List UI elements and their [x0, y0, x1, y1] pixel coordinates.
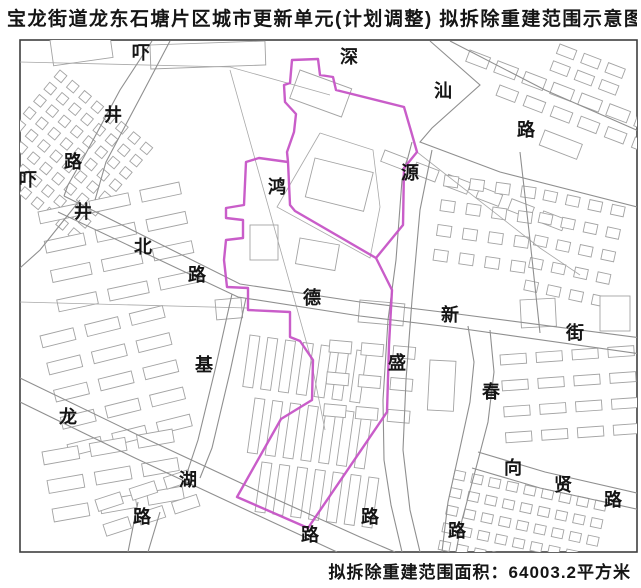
building — [488, 232, 503, 245]
building — [601, 249, 616, 261]
building — [541, 428, 568, 440]
building — [517, 211, 532, 224]
building — [31, 197, 44, 210]
building — [50, 32, 113, 66]
building — [143, 360, 179, 380]
road-label-char: 基 — [194, 354, 214, 375]
parcel-line — [20, 302, 248, 308]
building — [606, 227, 621, 239]
building — [495, 182, 510, 195]
building — [538, 377, 565, 389]
building — [488, 477, 501, 488]
road-label-char: 路 — [64, 151, 83, 172]
building — [586, 535, 599, 546]
building — [523, 95, 546, 112]
building — [466, 203, 481, 216]
building — [85, 317, 121, 337]
building — [23, 107, 36, 120]
building — [533, 235, 548, 247]
building — [506, 481, 519, 492]
building — [551, 528, 564, 539]
building — [103, 517, 131, 536]
building — [358, 375, 381, 389]
building — [47, 474, 85, 493]
building — [524, 280, 539, 292]
building — [504, 405, 531, 417]
building — [462, 228, 477, 241]
building — [42, 446, 80, 465]
building — [46, 105, 59, 118]
building — [15, 142, 28, 155]
building — [278, 340, 295, 393]
ji-road-east — [200, 298, 246, 478]
building — [27, 152, 40, 165]
building — [534, 524, 547, 535]
building — [550, 106, 573, 123]
building — [142, 458, 180, 477]
building — [79, 91, 92, 104]
building — [108, 281, 150, 301]
building — [98, 371, 134, 391]
road-label-char: 吓 — [132, 43, 150, 63]
building — [539, 130, 582, 159]
building — [323, 404, 346, 418]
building — [50, 262, 92, 282]
building — [546, 285, 561, 297]
road-label-char: 吓 — [19, 170, 37, 190]
building — [290, 70, 352, 117]
building — [146, 211, 188, 231]
building — [590, 518, 603, 529]
road-label-char: 源 — [401, 162, 419, 183]
road-label-char: 深 — [340, 46, 358, 67]
road-label-char: 春 — [482, 381, 501, 402]
building — [510, 260, 525, 273]
building — [522, 72, 547, 91]
building — [70, 125, 83, 138]
building — [498, 516, 511, 527]
building — [459, 253, 474, 266]
building — [301, 406, 319, 462]
road-label-char: 路 — [133, 506, 152, 527]
building — [610, 372, 637, 384]
building — [463, 509, 476, 520]
building — [85, 158, 98, 171]
building — [66, 80, 79, 93]
building — [261, 338, 278, 391]
building — [95, 146, 108, 159]
building — [0, 144, 5, 157]
building — [296, 343, 313, 396]
building — [7, 176, 20, 189]
building — [512, 538, 525, 549]
building — [613, 423, 640, 435]
building — [295, 238, 339, 271]
building — [438, 540, 451, 551]
building — [611, 398, 638, 410]
road-label-char: 德 — [303, 287, 321, 308]
building — [109, 179, 122, 192]
building — [81, 113, 94, 126]
building — [583, 222, 598, 234]
building — [574, 70, 594, 86]
building — [36, 117, 49, 130]
building — [336, 411, 354, 467]
road-label-char: 贤 — [554, 475, 572, 495]
building — [548, 545, 561, 556]
building — [358, 300, 405, 326]
building — [495, 534, 508, 545]
building — [48, 127, 61, 140]
building — [150, 387, 186, 407]
road-label-char: 向 — [504, 457, 522, 478]
road-label-char: 路 — [604, 489, 623, 510]
road-label-char: 汕 — [434, 81, 452, 101]
building — [140, 182, 182, 202]
building — [387, 409, 410, 423]
building — [273, 465, 290, 516]
building — [578, 245, 593, 257]
building — [577, 116, 600, 133]
building — [130, 154, 143, 167]
building — [481, 513, 494, 524]
building — [505, 431, 532, 443]
building — [569, 290, 584, 302]
building — [575, 400, 602, 412]
building — [105, 134, 118, 147]
building — [250, 225, 278, 260]
building — [136, 333, 172, 353]
building — [427, 360, 456, 411]
building — [485, 495, 498, 506]
building — [355, 407, 378, 421]
building — [610, 204, 625, 216]
building — [540, 403, 567, 415]
building — [354, 413, 372, 469]
building-cluster — [524, 190, 625, 307]
building — [550, 61, 570, 77]
building — [93, 123, 106, 136]
building — [433, 249, 448, 262]
building-cluster — [500, 346, 640, 443]
building — [469, 179, 484, 192]
building — [536, 351, 563, 363]
building — [496, 85, 519, 102]
building — [25, 129, 38, 142]
road-label-char: 街 — [565, 322, 584, 343]
building — [305, 158, 373, 211]
building — [572, 348, 599, 360]
building — [443, 175, 458, 188]
building — [50, 150, 63, 163]
demolition-scope-map: 宝龙街道龙东石塘片区城市更新单元(计划调整) 拟拆除重建范围示意图 深汕路吓井路… — [0, 0, 641, 588]
map-canvas: 深汕路吓井路吓井北路鸿源德新街盛基春龙湖向贤路路路路路 — [0, 0, 641, 588]
building — [502, 499, 515, 510]
building — [47, 355, 83, 375]
building — [52, 503, 90, 522]
building — [3, 131, 16, 144]
building — [599, 79, 619, 95]
building — [491, 207, 506, 220]
building — [5, 154, 18, 167]
road-label-char: 井 — [104, 104, 122, 125]
building — [600, 296, 630, 331]
building — [105, 398, 141, 418]
building — [44, 82, 57, 95]
road-label-char: 路 — [448, 520, 467, 541]
building — [521, 186, 536, 199]
building — [485, 257, 500, 270]
building — [40, 162, 53, 175]
building — [556, 44, 576, 60]
building — [596, 272, 611, 284]
road-label-char: 鸿 — [268, 176, 286, 197]
building — [58, 115, 71, 128]
building — [588, 200, 603, 212]
road-label-char: 盛 — [388, 352, 406, 373]
building — [550, 82, 575, 101]
building — [500, 353, 527, 365]
building — [91, 344, 127, 364]
building — [329, 340, 352, 354]
road-label-char: 路 — [301, 524, 320, 545]
building — [604, 127, 627, 144]
building — [57, 292, 99, 312]
road-label-char: 井 — [74, 201, 92, 222]
building — [516, 520, 529, 531]
building — [477, 530, 490, 541]
building — [361, 343, 384, 357]
building — [42, 185, 55, 198]
building — [128, 132, 141, 145]
road-label-char: 路 — [188, 264, 207, 285]
building — [574, 374, 601, 386]
road-label-char: 湖 — [179, 470, 197, 490]
building — [502, 379, 529, 391]
building — [390, 377, 413, 391]
building — [569, 531, 582, 542]
building — [129, 306, 165, 326]
road-label-char: 路 — [361, 506, 380, 527]
building — [543, 190, 558, 202]
building — [40, 328, 76, 348]
building — [561, 217, 576, 229]
building — [529, 257, 544, 269]
building — [573, 514, 586, 525]
building — [56, 93, 69, 106]
building — [556, 240, 571, 252]
road-label-char: 北 — [134, 237, 152, 257]
road-label-char: 龙 — [59, 406, 77, 427]
area-caption: 拟拆除重建范围面积：64003.2平方米 — [329, 558, 631, 583]
building — [326, 372, 349, 386]
building — [605, 63, 625, 79]
building — [38, 140, 51, 153]
building — [581, 53, 601, 69]
building — [117, 144, 130, 157]
building — [344, 475, 361, 526]
building — [440, 200, 455, 213]
road-label-char: 路 — [517, 119, 536, 140]
building — [530, 542, 543, 553]
ji-road-west — [188, 294, 232, 470]
building — [538, 212, 553, 224]
building — [537, 506, 550, 517]
building — [52, 172, 65, 185]
building — [265, 401, 283, 457]
building — [68, 103, 81, 116]
building — [437, 225, 452, 238]
building — [107, 156, 120, 169]
building — [60, 138, 73, 151]
building — [91, 101, 104, 114]
building — [577, 426, 604, 438]
building — [555, 510, 568, 521]
building — [243, 335, 260, 388]
building — [565, 195, 580, 207]
building — [54, 382, 90, 402]
building — [606, 104, 631, 123]
building-cluster — [247, 398, 372, 469]
building — [54, 70, 67, 83]
building — [291, 467, 308, 518]
building — [140, 142, 153, 155]
building — [574, 267, 589, 279]
building — [94, 466, 132, 485]
building — [74, 170, 87, 183]
building — [0, 166, 7, 179]
road-label-char: 新 — [441, 304, 459, 325]
building — [34, 95, 47, 108]
building — [119, 167, 132, 180]
building — [247, 398, 265, 454]
building — [520, 503, 533, 514]
